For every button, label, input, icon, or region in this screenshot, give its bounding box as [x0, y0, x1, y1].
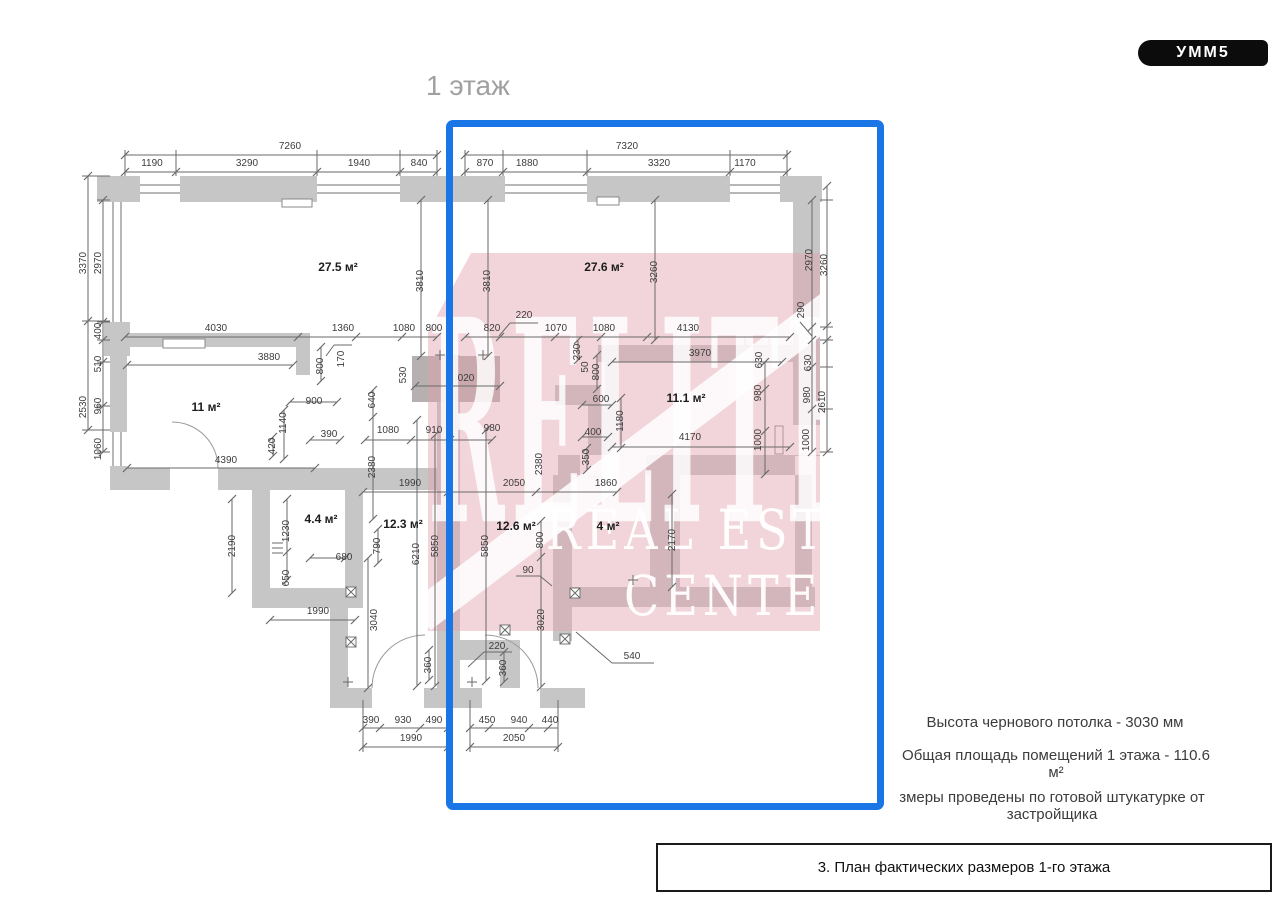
- dim-label: 1140: [279, 412, 289, 434]
- dim-label: 960: [94, 398, 104, 415]
- dim-label: 510: [94, 356, 104, 373]
- dim-label: 2190: [228, 535, 238, 557]
- dim-label: 1940: [348, 159, 370, 169]
- dim-label: 400: [94, 323, 104, 340]
- note-total-area: Общая площадь помещений 1 этажа - 110.6 …: [896, 747, 1216, 781]
- note-ceiling-height: Высота чернового потолка - 3030 мм: [900, 714, 1210, 731]
- dim-label: 900: [306, 397, 323, 407]
- dim-label: 3810: [416, 270, 426, 292]
- drawing-caption: 3. План фактических размеров 1-го этажа: [656, 843, 1272, 892]
- dim-label: 640: [368, 392, 378, 409]
- dim-label: 1990: [400, 734, 422, 744]
- dim-label: 420: [268, 438, 278, 455]
- dim-label: 1230: [282, 520, 292, 542]
- dim-label: 930: [395, 716, 412, 726]
- dim-label: 530: [399, 367, 409, 384]
- dim-label: 1990: [399, 479, 421, 489]
- selection-rectangle: [446, 120, 884, 810]
- note-measurements: змеры проведены по готовой штукатурке от…: [878, 789, 1226, 823]
- dim-label: 390: [363, 716, 380, 726]
- dim-label: 840: [411, 159, 428, 169]
- dim-label: 1190: [141, 159, 163, 169]
- dim-label: 360: [424, 657, 434, 674]
- dim-label: 910: [426, 426, 443, 436]
- dim-label: 650: [282, 570, 292, 587]
- dim-label: 5850: [431, 535, 441, 557]
- dim-label: 3880: [258, 353, 280, 363]
- room-area-label: 27.5 м²: [318, 261, 358, 273]
- room-area-label: 11 м²: [192, 401, 221, 413]
- dim-label: 1060: [94, 438, 104, 460]
- page-title: 1 этаж: [426, 70, 510, 102]
- dim-label: 2380: [368, 456, 378, 478]
- dim-label: 3040: [370, 609, 380, 631]
- room-area-label: 12.3 м²: [383, 518, 423, 530]
- agency-logo: УММ5: [1138, 40, 1268, 66]
- dim-label: 790: [373, 538, 383, 555]
- room-area-label: 4.4 м²: [305, 513, 338, 525]
- dim-label: 800: [316, 358, 326, 375]
- dim-label: 6210: [412, 543, 422, 565]
- dim-label: 1990: [307, 607, 329, 617]
- dim-label: 680: [336, 553, 353, 563]
- dim-label: 4030: [205, 324, 227, 334]
- dim-label: 490: [426, 716, 443, 726]
- dim-label: 170: [337, 351, 347, 368]
- dim-label: 2530: [79, 396, 89, 418]
- dim-label: 7260: [279, 142, 301, 152]
- dim-label: 1080: [377, 426, 399, 436]
- dim-label: 4390: [215, 456, 237, 466]
- dim-label: 3370: [79, 252, 89, 274]
- dim-label: 3290: [236, 159, 258, 169]
- dim-label: 390: [321, 430, 338, 440]
- dim-label: 1080: [393, 324, 415, 334]
- dim-label: 2970: [94, 252, 104, 274]
- dim-label: 1360: [332, 324, 354, 334]
- dim-label: 800: [426, 324, 443, 334]
